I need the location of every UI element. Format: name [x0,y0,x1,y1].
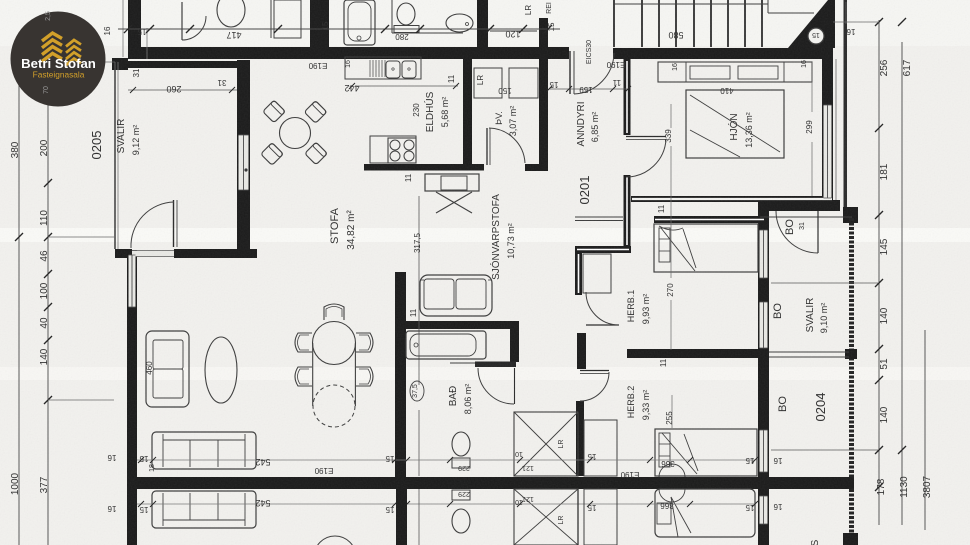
svg-text:Fasteignasala: Fasteignasala [33,70,85,80]
svg-text:2,5: 2,5 [45,11,52,21]
svg-text:70: 70 [43,86,50,94]
